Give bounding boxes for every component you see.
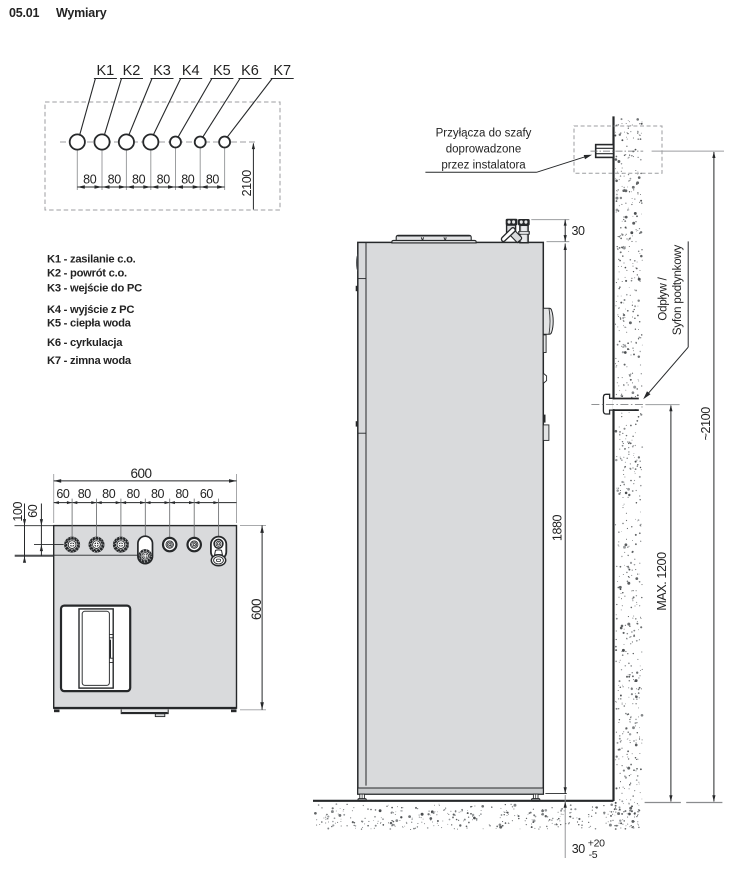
svg-text:80: 80 [206,173,220,187]
svg-text:Przyłącza do szafy: Przyłącza do szafy [436,128,532,140]
svg-text:60: 60 [200,487,214,501]
svg-text:60: 60 [56,487,70,501]
svg-text:K6: K6 [241,63,259,79]
svg-text:80: 80 [78,487,92,501]
svg-text:100: 100 [11,502,25,522]
svg-text:K4 - wyjście z PC: K4 - wyjście z PC [47,304,134,316]
svg-text:1880: 1880 [550,514,564,541]
svg-text:K2: K2 [123,63,141,79]
svg-text:K3 - wejście do PC: K3 - wejście do PC [47,283,142,295]
svg-text:przez instalatora: przez instalatora [441,160,526,172]
svg-text:doprowadzone: doprowadzone [446,144,521,156]
svg-text:+20: +20 [588,838,605,850]
svg-text:K7 - zimna woda: K7 - zimna woda [47,355,132,367]
svg-text:80: 80 [83,173,97,187]
svg-text:80: 80 [108,173,122,187]
svg-text:K1: K1 [97,63,115,79]
svg-text:-5: -5 [589,849,598,861]
svg-text:~2100: ~2100 [699,407,713,441]
svg-text:600: 600 [130,466,151,481]
svg-text:K7: K7 [273,63,291,79]
svg-text:MAX. 1200: MAX. 1200 [655,552,669,611]
svg-text:Wymiary: Wymiary [56,6,107,20]
svg-text:80: 80 [102,487,116,501]
svg-text:30: 30 [572,842,586,856]
svg-text:60: 60 [26,504,40,518]
svg-text:80: 80 [175,487,189,501]
svg-text:80: 80 [157,173,171,187]
svg-text:80: 80 [151,487,165,501]
svg-text:Odpływ /: Odpływ / [658,276,670,320]
svg-text:K5: K5 [213,63,231,79]
svg-text:2100: 2100 [240,170,254,197]
svg-text:K1 - zasilanie c.o.: K1 - zasilanie c.o. [47,254,136,266]
svg-text:K2 - powrót c.o.: K2 - powrót c.o. [47,267,127,279]
svg-text:600: 600 [249,599,264,620]
svg-text:80: 80 [132,173,146,187]
svg-text:30: 30 [572,224,586,238]
svg-text:K4: K4 [182,63,200,79]
svg-text:K6 - cyrkulacja: K6 - cyrkulacja [47,337,123,349]
svg-text:80: 80 [127,487,141,501]
svg-text:80: 80 [181,173,195,187]
svg-text:Syfon podtynkowy: Syfon podtynkowy [672,244,684,335]
svg-text:05.01: 05.01 [9,6,40,20]
svg-text:K3: K3 [153,63,171,79]
svg-text:K5 - ciepła woda: K5 - ciepła woda [47,318,132,330]
